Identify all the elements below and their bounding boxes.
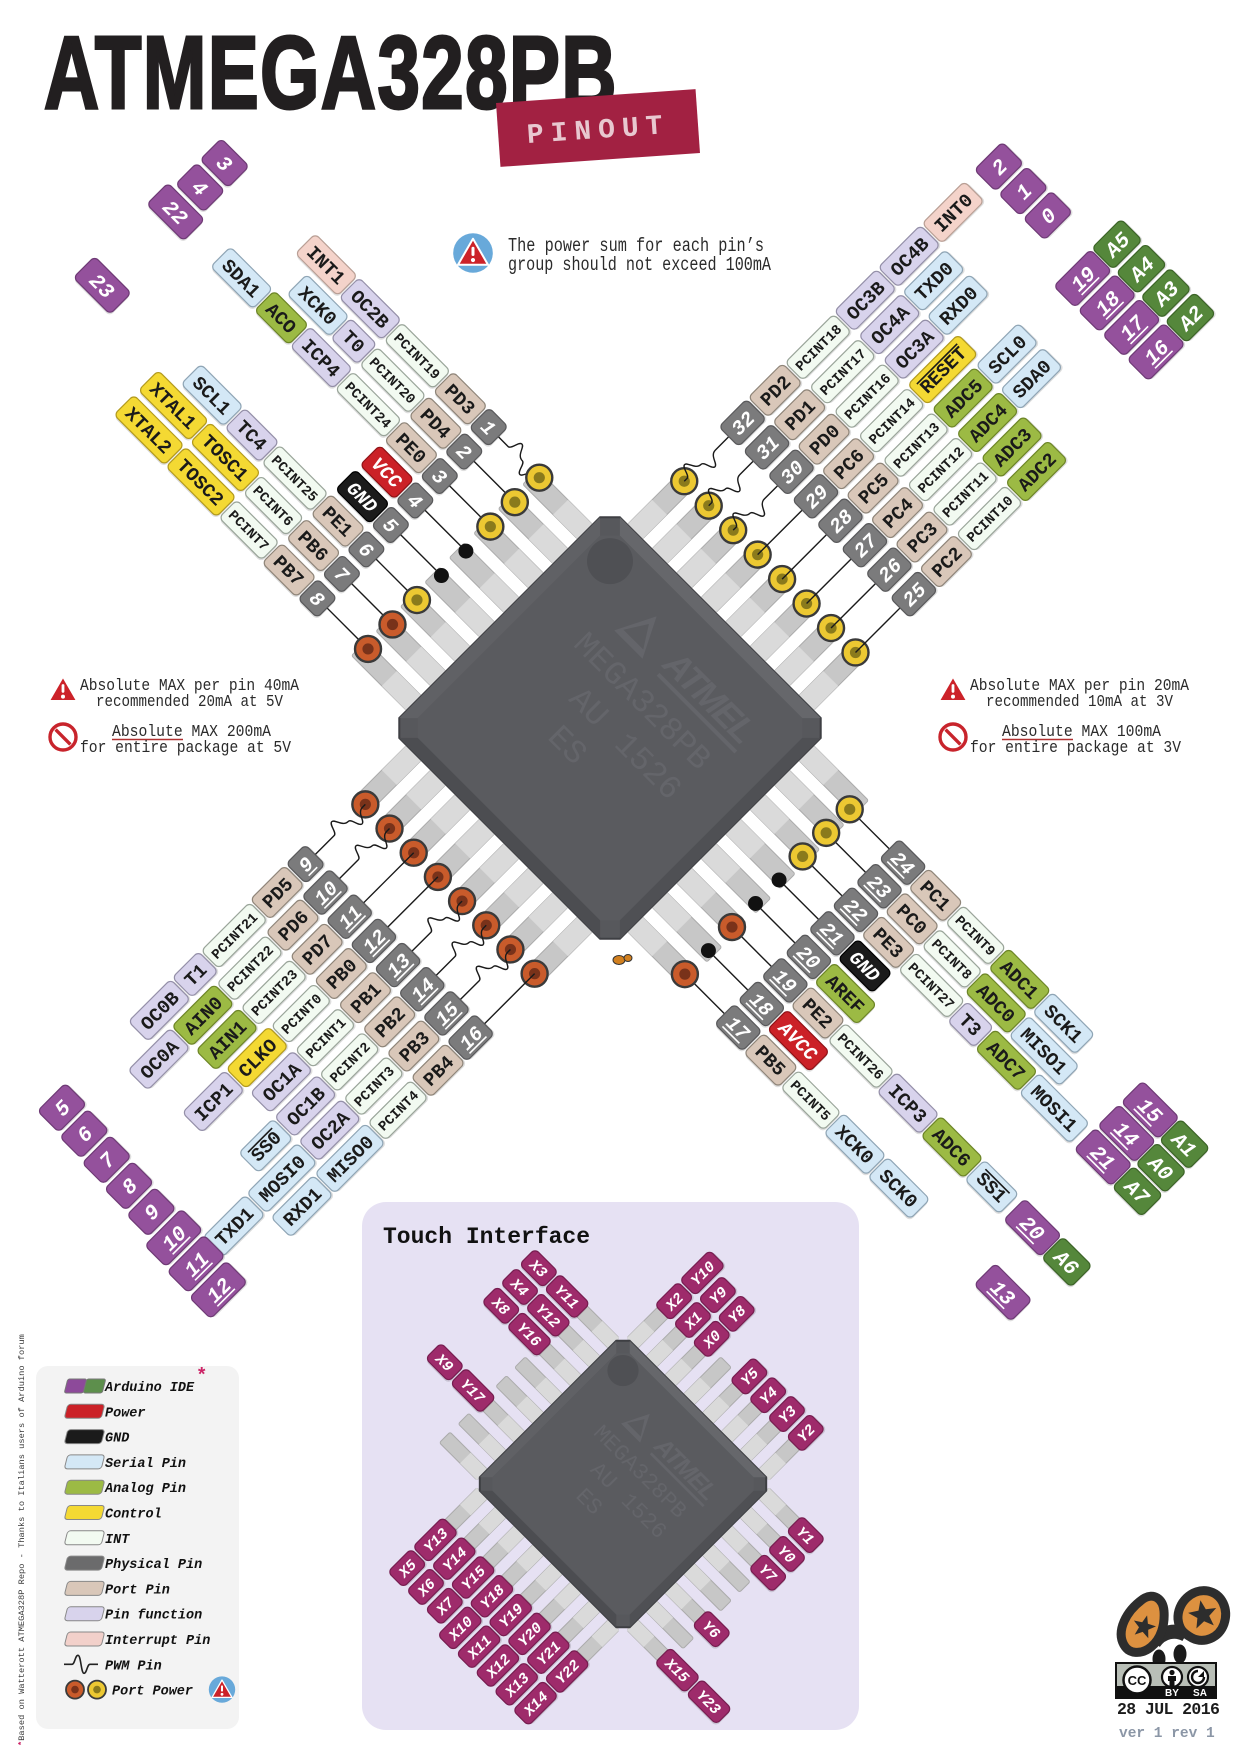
svg-text:group should not exceed 100mA: group should not exceed 100mA <box>508 254 771 276</box>
svg-text:Arduino IDE: Arduino IDE <box>104 1381 195 1396</box>
svg-text:INT: INT <box>105 1533 130 1548</box>
svg-text:Interrupt Pin: Interrupt Pin <box>105 1634 210 1649</box>
svg-text:*Based on Watterott ATMEGA328P: *Based on Watterott ATMEGA328P Repo - Th… <box>17 1334 27 1746</box>
svg-text:*: * <box>196 1365 207 1387</box>
svg-text:28 JUL 2016: 28 JUL 2016 <box>1117 1700 1219 1719</box>
svg-text:Physical Pin: Physical Pin <box>105 1558 202 1573</box>
svg-text:Port Pin: Port Pin <box>105 1583 170 1598</box>
svg-text:Control: Control <box>105 1508 162 1523</box>
svg-text:for entire package at 5V: for entire package at 5V <box>80 739 292 758</box>
svg-text:recommended 20mA at 5V: recommended 20mA at 5V <box>96 693 284 712</box>
svg-text:BY: BY <box>1165 1688 1179 1699</box>
svg-text:CC: CC <box>1128 1673 1147 1688</box>
svg-text:PWM Pin: PWM Pin <box>105 1659 162 1674</box>
svg-text:Power: Power <box>105 1406 146 1421</box>
svg-text:GND: GND <box>105 1432 129 1447</box>
svg-text:Analog Pin: Analog Pin <box>104 1482 186 1497</box>
svg-text:for entire package at 3V: for entire package at 3V <box>970 739 1182 758</box>
svg-text:Pin function: Pin function <box>105 1609 202 1624</box>
svg-text:Port Power: Port Power <box>112 1685 193 1700</box>
svg-text:Serial Pin: Serial Pin <box>105 1457 186 1472</box>
svg-text:Touch Interface: Touch Interface <box>383 1224 590 1250</box>
svg-text:ver 1 rev 1: ver 1 rev 1 <box>1119 1726 1215 1742</box>
svg-text:SA: SA <box>1193 1688 1207 1699</box>
svg-text:recommended 10mA at 3V: recommended 10mA at 3V <box>986 693 1174 712</box>
